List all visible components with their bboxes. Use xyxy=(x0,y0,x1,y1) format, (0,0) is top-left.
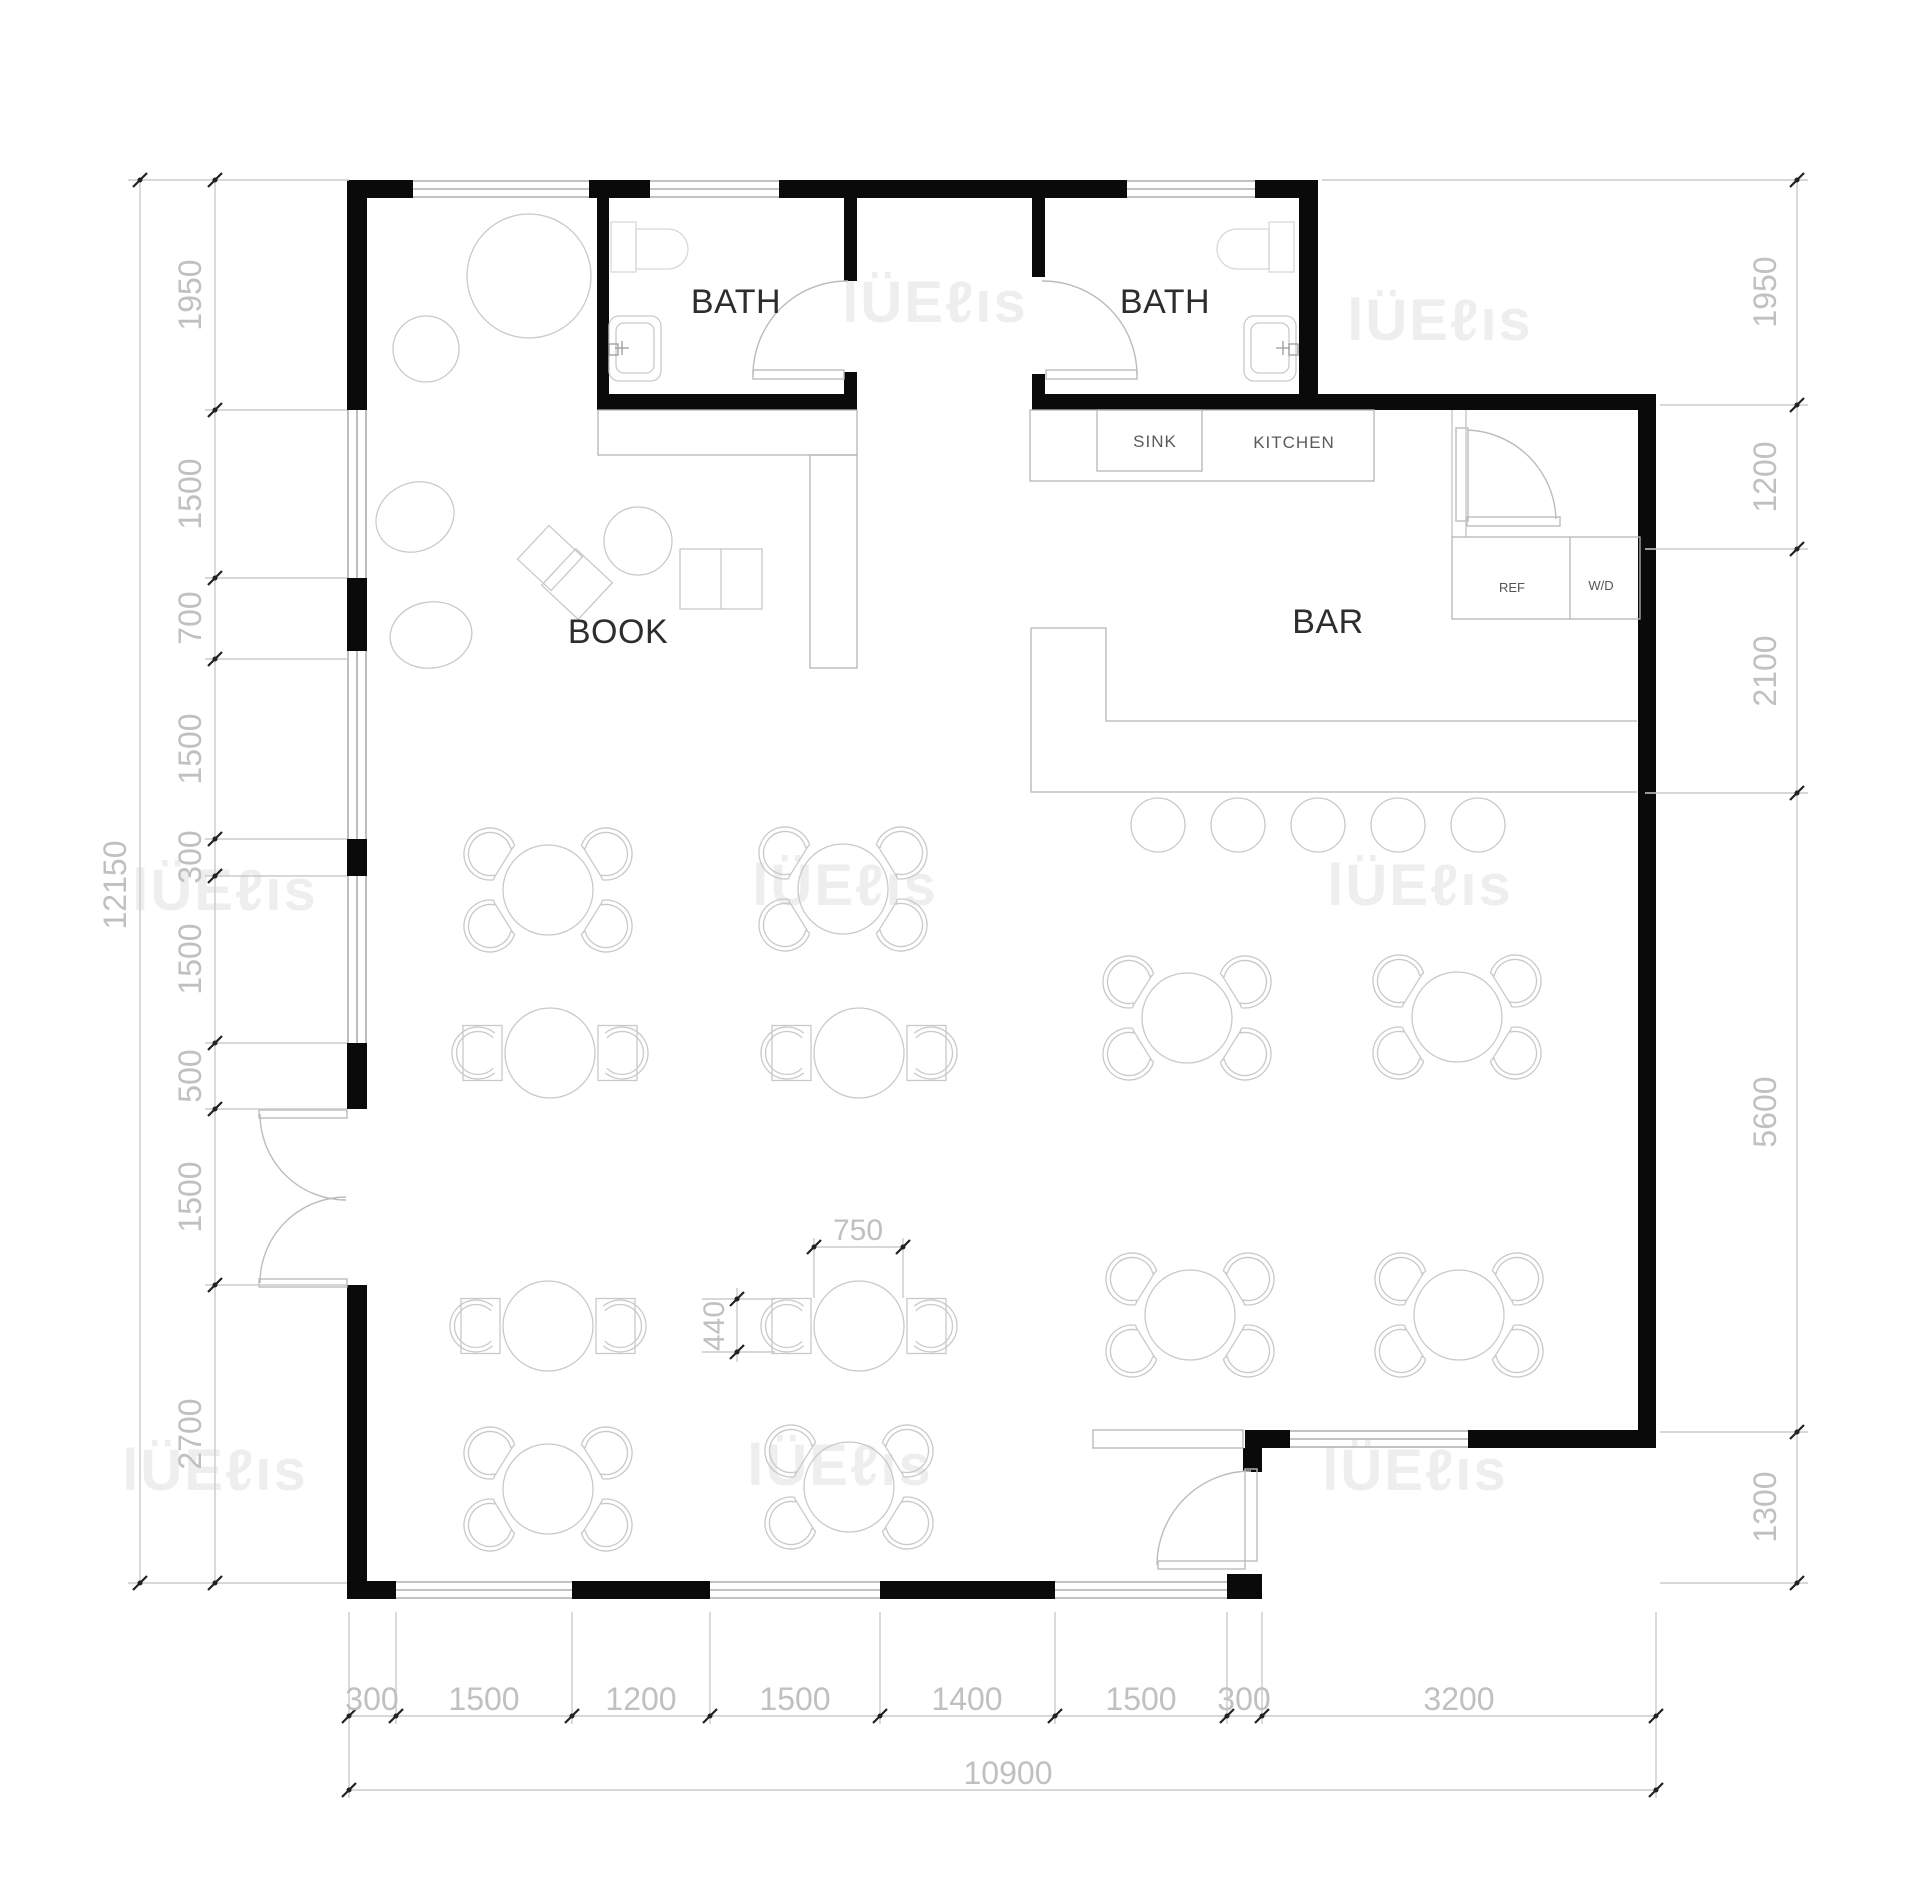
svg-text:BATH: BATH xyxy=(1120,283,1210,321)
svg-text:500: 500 xyxy=(172,1049,208,1102)
svg-text:300: 300 xyxy=(345,1681,398,1717)
svg-text:1950: 1950 xyxy=(172,259,208,330)
svg-text:1500: 1500 xyxy=(172,713,208,784)
svg-text:10900: 10900 xyxy=(964,1755,1053,1791)
svg-text:1500: 1500 xyxy=(448,1681,519,1717)
svg-text:lÜEℓıs: lÜEℓıs xyxy=(1327,853,1512,918)
svg-text:1300: 1300 xyxy=(1747,1471,1783,1542)
svg-text:REF: REF xyxy=(1499,580,1525,595)
svg-text:1500: 1500 xyxy=(172,458,208,529)
svg-text:750: 750 xyxy=(833,1214,883,1247)
svg-text:12150: 12150 xyxy=(97,841,133,930)
svg-text:1950: 1950 xyxy=(1747,256,1783,327)
svg-text:1400: 1400 xyxy=(931,1681,1002,1717)
svg-text:BOOK: BOOK xyxy=(568,613,668,651)
svg-text:SINK: SINK xyxy=(1133,432,1177,451)
svg-text:440: 440 xyxy=(698,1301,731,1351)
svg-text:1500: 1500 xyxy=(759,1681,830,1717)
svg-text:lÜEℓıs: lÜEℓıs xyxy=(132,858,317,923)
svg-text:2700: 2700 xyxy=(172,1398,208,1469)
svg-text:1200: 1200 xyxy=(1747,441,1783,512)
svg-text:lÜEℓıs: lÜEℓıs xyxy=(1347,288,1532,353)
svg-text:1500: 1500 xyxy=(172,1161,208,1232)
svg-text:300: 300 xyxy=(1217,1681,1270,1717)
svg-text:1500: 1500 xyxy=(172,923,208,994)
svg-text:1200: 1200 xyxy=(605,1681,676,1717)
svg-text:lÜEℓıs: lÜEℓıs xyxy=(752,853,937,918)
svg-text:5600: 5600 xyxy=(1747,1076,1783,1147)
svg-text:BATH: BATH xyxy=(691,283,781,321)
svg-text:700: 700 xyxy=(172,591,208,644)
svg-text:W/D: W/D xyxy=(1588,578,1613,593)
svg-text:lÜEℓıs: lÜEℓıs xyxy=(842,270,1027,335)
svg-text:300: 300 xyxy=(172,830,208,883)
svg-text:1500: 1500 xyxy=(1105,1681,1176,1717)
svg-text:KITCHEN: KITCHEN xyxy=(1253,433,1335,452)
svg-text:2100: 2100 xyxy=(1747,635,1783,706)
svg-text:3200: 3200 xyxy=(1423,1681,1494,1717)
svg-text:BAR: BAR xyxy=(1292,603,1363,641)
